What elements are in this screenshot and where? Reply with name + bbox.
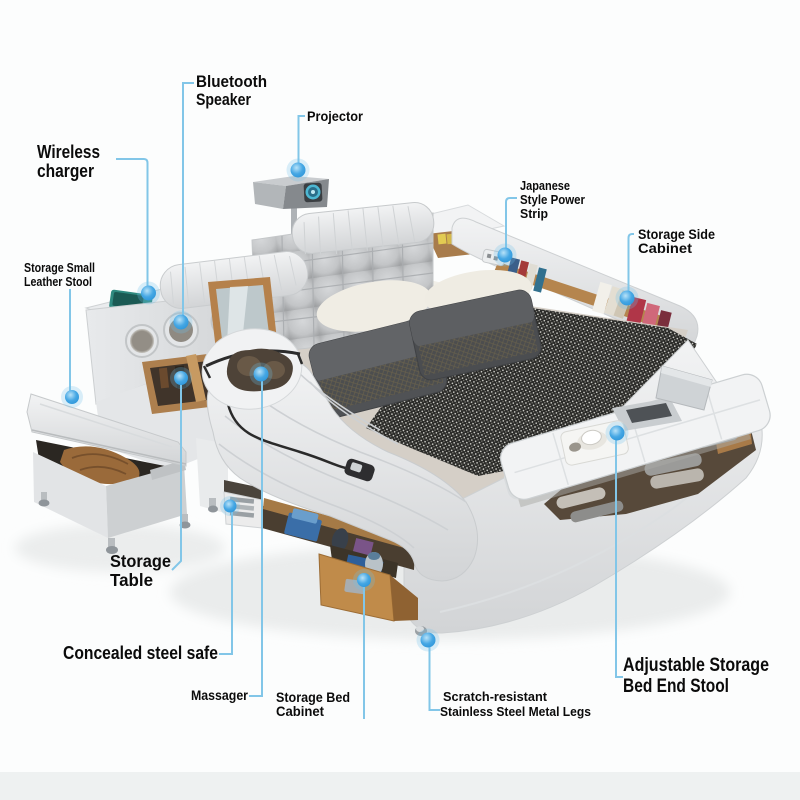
svg-text:Bluetooth: Bluetooth: [196, 73, 267, 91]
svg-text:Table: Table: [110, 570, 153, 590]
svg-text:Storage Side: Storage Side: [638, 227, 715, 242]
svg-text:Leather Stool: Leather Stool: [24, 275, 92, 289]
svg-text:Speaker: Speaker: [196, 91, 251, 109]
svg-text:Adjustable Storage: Adjustable Storage: [623, 654, 769, 676]
svg-text:Bed End Stool: Bed End Stool: [623, 675, 729, 697]
svg-text:Wireless: Wireless: [37, 141, 100, 162]
svg-text:Scratch-resistant: Scratch-resistant: [443, 689, 548, 704]
svg-text:Storage Small: Storage Small: [24, 261, 95, 275]
svg-text:Style Power: Style Power: [520, 192, 585, 207]
svg-text:Storage: Storage: [110, 551, 171, 571]
svg-text:Strip: Strip: [520, 206, 548, 221]
svg-text:Storage Bed: Storage Bed: [276, 690, 350, 705]
svg-text:Cabinet: Cabinet: [638, 241, 693, 256]
svg-text:Projector: Projector: [307, 109, 364, 124]
svg-text:Cabinet: Cabinet: [276, 704, 324, 719]
svg-text:Massager: Massager: [191, 688, 249, 703]
svg-text:charger: charger: [37, 160, 94, 181]
svg-text:Concealed steel safe: Concealed steel safe: [63, 643, 218, 663]
svg-text:Japanese: Japanese: [520, 178, 570, 193]
svg-text:Stainless Steel Metal Legs: Stainless Steel Metal Legs: [440, 704, 591, 719]
